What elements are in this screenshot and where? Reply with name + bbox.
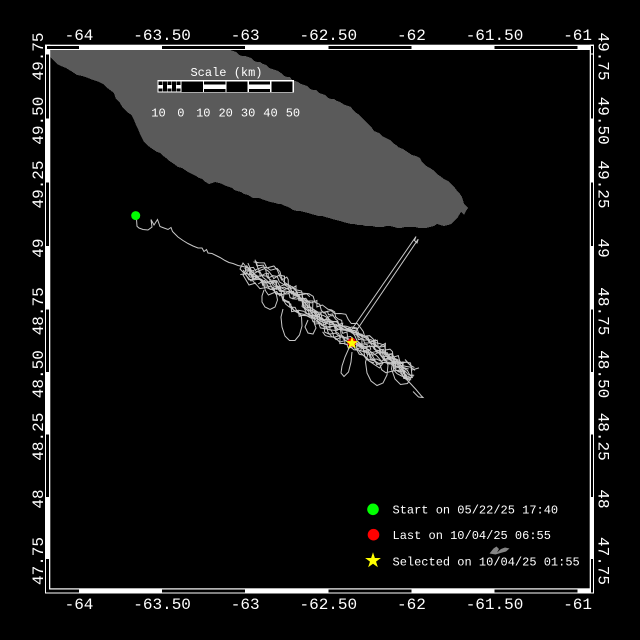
svg-text:49.25: 49.25 [593, 160, 611, 208]
svg-text:48.50: 48.50 [30, 350, 48, 398]
svg-text:Selected on 10/04/25 01:55: Selected on 10/04/25 01:55 [393, 555, 580, 569]
svg-text:-61.50: -61.50 [466, 596, 524, 614]
svg-text:-62: -62 [397, 27, 426, 45]
svg-text:49.75: 49.75 [30, 32, 48, 80]
svg-text:49.50: 49.50 [30, 97, 48, 145]
svg-text:-63.50: -63.50 [133, 27, 191, 45]
svg-text:Start on 05/22/25 17:40: Start on 05/22/25 17:40 [393, 504, 559, 518]
svg-text:40: 40 [263, 107, 277, 121]
svg-text:49: 49 [30, 238, 48, 257]
svg-text:48.25: 48.25 [593, 413, 611, 461]
svg-text:48: 48 [593, 489, 611, 508]
svg-text:10: 10 [196, 107, 210, 121]
svg-text:30: 30 [241, 107, 255, 121]
svg-text:48: 48 [30, 489, 48, 508]
svg-text:49.75: 49.75 [593, 32, 611, 80]
svg-text:48.25: 48.25 [30, 413, 48, 461]
svg-text:Last on 10/04/25 06:55: Last on 10/04/25 06:55 [393, 529, 551, 543]
svg-text:50: 50 [286, 107, 300, 121]
svg-text:49: 49 [593, 238, 611, 257]
svg-text:48.50: 48.50 [593, 350, 611, 398]
svg-text:Scale (km): Scale (km) [190, 66, 262, 80]
svg-text:49.25: 49.25 [30, 160, 48, 208]
svg-text:-61.50: -61.50 [466, 27, 524, 45]
svg-text:-62.50: -62.50 [299, 27, 357, 45]
svg-text:-63: -63 [231, 27, 260, 45]
svg-text:-64: -64 [65, 27, 94, 45]
svg-text:0: 0 [177, 107, 184, 121]
svg-text:47.75: 47.75 [30, 537, 48, 585]
svg-text:-61: -61 [563, 596, 592, 614]
svg-text:10: 10 [151, 107, 165, 121]
svg-text:48.75: 48.75 [30, 287, 48, 335]
svg-text:-61: -61 [563, 27, 592, 45]
svg-text:47.75: 47.75 [593, 537, 611, 585]
svg-text:-64: -64 [65, 596, 94, 614]
svg-text:-62.50: -62.50 [299, 596, 357, 614]
svg-text:48.75: 48.75 [593, 287, 611, 335]
svg-text:49.50: 49.50 [593, 97, 611, 145]
svg-text:-63: -63 [231, 596, 260, 614]
svg-text:-62: -62 [397, 596, 426, 614]
svg-text:-63.50: -63.50 [133, 596, 191, 614]
svg-text:20: 20 [218, 107, 232, 121]
